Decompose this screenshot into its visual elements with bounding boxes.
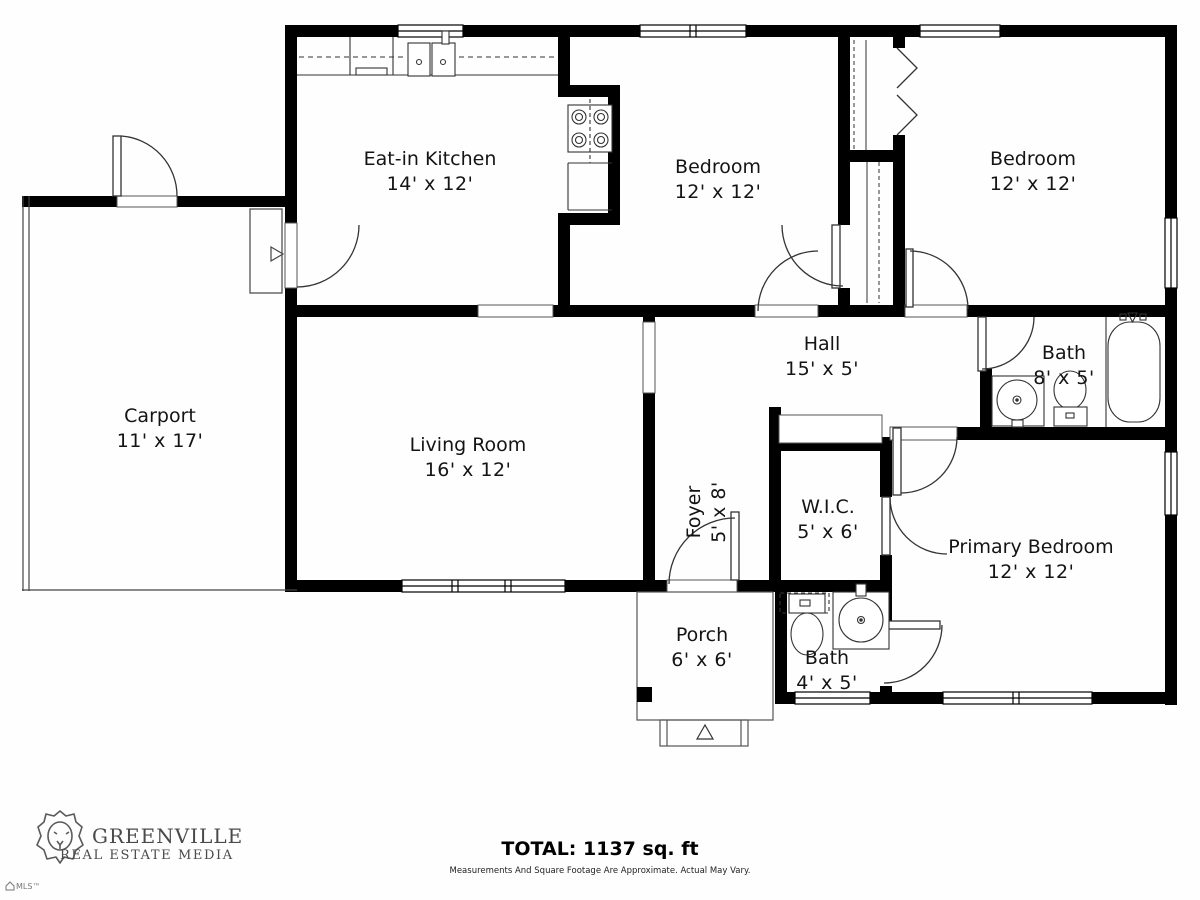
room-dims: 5' x 6': [797, 520, 858, 545]
room-name: Living Room: [410, 433, 527, 458]
room-label-porch: Porch 6' x 6': [671, 623, 732, 673]
room-label-foyer: Foyer 5' x 8': [682, 481, 732, 542]
disclaimer-text: Measurements And Square Footage Are Appr…: [449, 866, 750, 876]
room-dims: 15' x 5': [785, 357, 859, 382]
room-label-small-bath: Bath 4' x 5': [796, 646, 857, 696]
room-name: W.I.C.: [797, 495, 858, 520]
bedroom2-side-window: [1165, 218, 1177, 288]
room-dims: 12' x 12': [948, 560, 1113, 585]
stove: [568, 99, 612, 163]
bedroom1-door: [755, 251, 818, 317]
small-bath-door: [883, 621, 942, 683]
mls-watermark: MLS™: [5, 881, 40, 891]
primary-bottom-window: [943, 692, 1092, 704]
brand-subtitle: REAL ESTATE MEDIA: [60, 848, 234, 863]
hall-bath-door: [978, 317, 1034, 371]
room-label-wic: W.I.C. 5' x 6': [797, 495, 858, 545]
small-bath-fixtures: [780, 584, 889, 655]
room-dims: 6' x 6': [671, 648, 732, 673]
mls-watermark-text: MLS™: [16, 882, 40, 891]
bifold-closet-doors: [897, 48, 917, 135]
room-dims: 12' x 12': [990, 172, 1077, 197]
bathtub: [1106, 313, 1160, 427]
room-name: Carport: [117, 404, 204, 429]
room-label-bedroom-2: Bedroom 12' x 12': [990, 147, 1077, 197]
carport-door: [113, 136, 177, 207]
round-sink: [833, 584, 889, 649]
total-square-footage: TOTAL: 1137 sq. ft: [501, 838, 698, 860]
room-name: Porch: [671, 623, 732, 648]
porch-post: [637, 687, 652, 702]
bedroom1-window: [640, 25, 746, 37]
primary-side-window: [1165, 452, 1177, 515]
kitchen-sink: [408, 31, 455, 76]
room-dims: 5' x 8': [707, 481, 732, 542]
room-name: Foyer: [682, 481, 707, 542]
entry-arrow-icon: [271, 247, 283, 261]
wic-door: [882, 497, 947, 555]
brand-block: GREENVILLE REAL ESTATE MEDIA: [0, 808, 300, 878]
closet-lines: [854, 40, 879, 303]
room-label-carport: Carport 11' x 17': [117, 404, 204, 454]
room-dims: 11' x 17': [117, 429, 204, 454]
room-label-primary-bedroom: Primary Bedroom 12' x 12': [948, 535, 1113, 585]
room-name: Bedroom: [990, 147, 1077, 172]
room-name: Primary Bedroom: [948, 535, 1113, 560]
room-label-hall: Hall 15' x 5': [785, 332, 859, 382]
bedroom1-closet-door: [782, 225, 843, 288]
dishwasher: [356, 68, 387, 75]
wic-doorway: [779, 415, 882, 443]
living-room-windows: [402, 580, 565, 592]
room-dims: 16' x 12': [410, 458, 527, 483]
room-dims: 4' x 5': [796, 671, 857, 696]
room-dims: 14' x 12': [364, 172, 497, 197]
room-name: Hall: [785, 332, 859, 357]
primary-entry-door: [890, 427, 957, 495]
brand-name: GREENVILLE: [92, 824, 243, 848]
floor-plan-page: Eat-in Kitchen 14' x 12' Bedroom 12' x 1…: [0, 0, 1200, 900]
house-icon: [5, 881, 15, 891]
bedroom2-window: [920, 25, 1000, 37]
entry-arrow-icon: [697, 725, 713, 739]
kitchen-counter-lower: [568, 163, 612, 210]
room-name: Bedroom: [675, 155, 762, 180]
bedroom2-door: [905, 249, 968, 317]
kitchen-window: [398, 25, 463, 37]
kitchen-living-opening: [478, 305, 553, 317]
room-dims: 12' x 12': [675, 180, 762, 205]
room-name: Eat-in Kitchen: [364, 147, 497, 172]
room-label-living-room: Living Room 16' x 12': [410, 433, 527, 483]
carport-structure: [22, 196, 297, 591]
room-name: Bath: [1033, 341, 1094, 366]
kitchen-side-door: [285, 223, 359, 288]
room-label-bedroom-1: Bedroom 12' x 12': [675, 155, 762, 205]
room-label-eat-in-kitchen: Eat-in Kitchen 14' x 12': [364, 147, 497, 197]
room-label-hall-bath: Bath 8' x 5': [1033, 341, 1094, 391]
living-hall-opening: [643, 322, 655, 393]
room-name: Bath: [796, 646, 857, 671]
room-dims: 8' x 5': [1033, 366, 1094, 391]
